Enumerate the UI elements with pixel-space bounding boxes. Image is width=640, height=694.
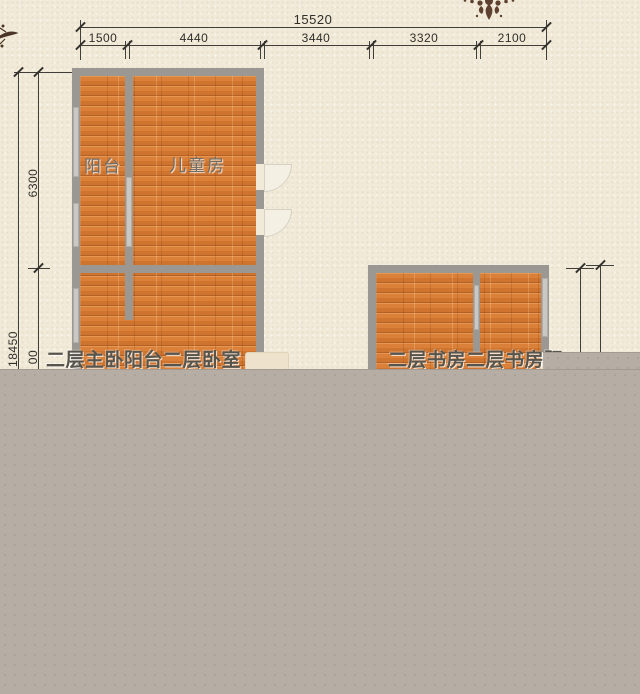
dim-line-left-total: [18, 72, 19, 369]
floorplan-page: 15520 1500 4440 3440 3320 2100: [0, 0, 640, 694]
wall-top: [72, 68, 264, 76]
dim-label-segment: 4440: [174, 31, 214, 45]
window-left-upper: [73, 107, 79, 177]
dim-label-total: 15520: [283, 12, 343, 27]
door-opening: [256, 164, 264, 190]
window-partition: [474, 285, 479, 330]
dim-label-segment: 3440: [296, 31, 336, 45]
dim-label-left-total: 18450: [6, 327, 20, 371]
left-building: [72, 68, 264, 372]
dim-label-left-upper: 6300: [26, 165, 40, 201]
dim-line-total: [80, 27, 546, 28]
dim-label-left-partial: 00: [26, 347, 40, 367]
dim-label-segment: 1500: [83, 31, 123, 45]
branch-ornament-icon: [0, 22, 18, 50]
wall-top: [368, 265, 549, 273]
window-left-lower: [73, 288, 79, 343]
dim-line-left-segments: [38, 72, 39, 369]
caption-right-rooms: 二层书房二层书房阳: [388, 345, 564, 372]
dim-ext: [14, 72, 78, 73]
wall-mid: [72, 265, 264, 273]
room-label-balcony: 阳台: [84, 152, 122, 177]
window-right: [542, 278, 548, 337]
dim-label-segment: 2100: [492, 31, 532, 45]
door-swing-icon: [264, 209, 292, 237]
wood-floor: [80, 76, 256, 372]
wall-left: [368, 265, 376, 372]
window-partition: [126, 177, 132, 247]
door-opening: [256, 209, 264, 235]
dim-label-segment: 3320: [404, 31, 444, 45]
damask-ornament-icon: [450, 0, 528, 21]
window-left-mid: [73, 203, 79, 247]
wall-partition-lower: [125, 273, 133, 320]
caption-left-rooms: 二层主卧阳台二层卧室: [46, 345, 241, 372]
covered-area: [0, 369, 640, 694]
door-swing-icon: [264, 164, 292, 192]
room-label-kids-room: 儿童房: [169, 151, 226, 176]
